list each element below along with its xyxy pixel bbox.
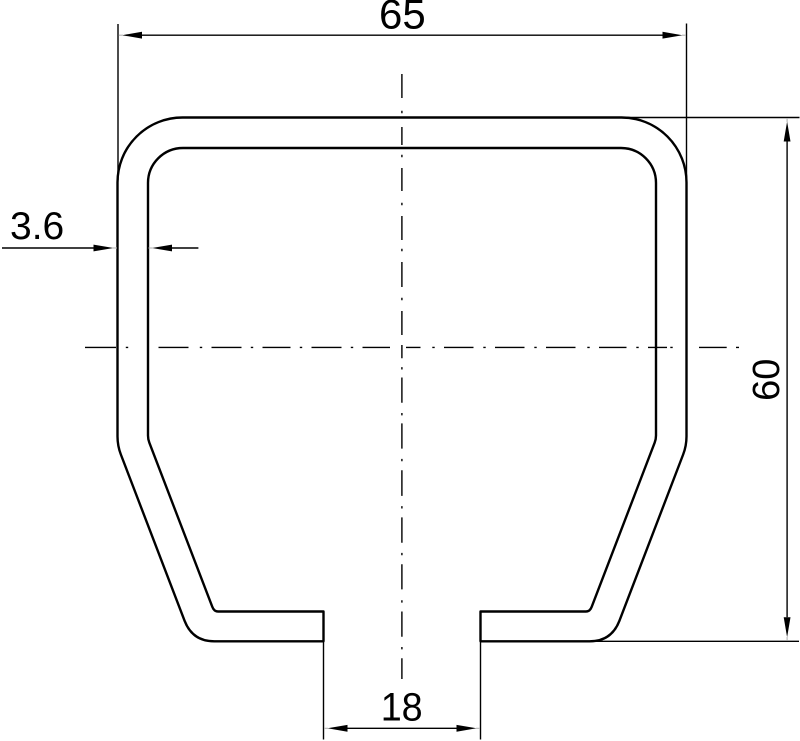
svg-text:3.6: 3.6 bbox=[10, 205, 64, 248]
svg-text:60: 60 bbox=[746, 359, 788, 401]
svg-text:65: 65 bbox=[379, 0, 426, 38]
svg-text:18: 18 bbox=[381, 685, 423, 729]
